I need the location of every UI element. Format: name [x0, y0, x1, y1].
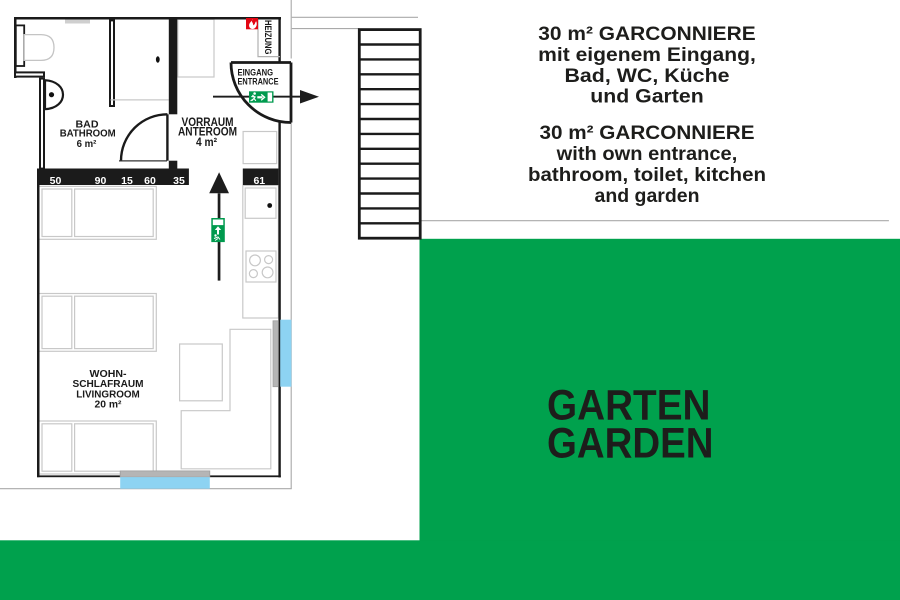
svg-text:61: 61 [253, 175, 265, 187]
svg-text:50: 50 [50, 175, 62, 187]
svg-text:Bad, WC, Küche: Bad, WC, Küche [565, 65, 730, 87]
svg-text:SCHLAFRAUM: SCHLAFRAUM [73, 379, 144, 390]
svg-text:und Garten: und Garten [590, 86, 703, 108]
svg-text:20 m²: 20 m² [95, 400, 123, 411]
svg-text:60: 60 [144, 175, 156, 187]
svg-text:mit eigenem Eingang,: mit eigenem Eingang, [538, 44, 756, 66]
svg-text:HEIZUNG: HEIZUNG [263, 20, 273, 55]
svg-text:and garden: and garden [595, 185, 700, 207]
svg-text:90: 90 [95, 175, 107, 187]
svg-text:ENTRANCE: ENTRANCE [238, 76, 279, 87]
svg-text:with own entrance,: with own entrance, [556, 143, 738, 165]
svg-text:GARDEN: GARDEN [547, 419, 714, 467]
svg-text:bathroom, toilet, kitchen: bathroom, toilet, kitchen [528, 164, 766, 186]
svg-text:4 m²: 4 m² [196, 135, 217, 149]
svg-text:35: 35 [173, 175, 185, 187]
svg-text:30 m² GARCONNIERE: 30 m² GARCONNIERE [540, 122, 755, 144]
svg-text:6 m²: 6 m² [77, 139, 97, 150]
svg-text:BATHROOM: BATHROOM [60, 128, 116, 139]
svg-text:15: 15 [121, 175, 133, 187]
svg-text:30 m² GARCONNIERE: 30 m² GARCONNIERE [538, 23, 755, 45]
